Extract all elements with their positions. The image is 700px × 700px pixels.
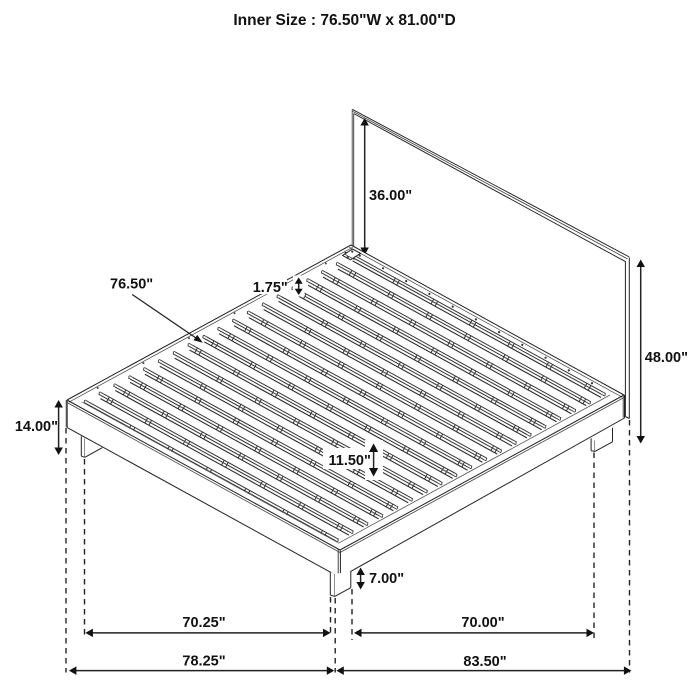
svg-text:70.25": 70.25" bbox=[182, 615, 225, 631]
svg-text:11.50": 11.50" bbox=[329, 453, 371, 469]
svg-text:78.25": 78.25" bbox=[182, 654, 225, 670]
svg-text:76.50": 76.50" bbox=[110, 277, 153, 293]
svg-text:14.00": 14.00" bbox=[15, 419, 58, 435]
svg-text:70.00": 70.00" bbox=[461, 615, 504, 631]
svg-text:48.00": 48.00" bbox=[645, 350, 688, 366]
svg-text:36.00": 36.00" bbox=[369, 188, 412, 204]
svg-text:7.00": 7.00" bbox=[369, 571, 404, 587]
svg-text:83.50": 83.50" bbox=[463, 654, 506, 670]
svg-text:Inner Size : 76.50"W x 81.00"D: Inner Size : 76.50"W x 81.00"D bbox=[233, 12, 455, 29]
svg-text:1.75": 1.75" bbox=[253, 280, 288, 296]
